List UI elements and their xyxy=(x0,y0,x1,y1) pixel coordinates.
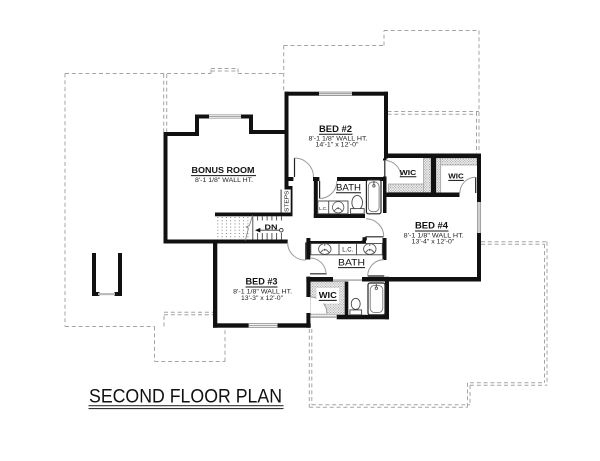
svg-text:WIC: WIC xyxy=(400,168,417,177)
svg-text:13'-4" x 12'-0": 13'-4" x 12'-0" xyxy=(412,239,455,246)
svg-text:WIC: WIC xyxy=(448,171,464,180)
svg-text:BATH: BATH xyxy=(338,257,365,268)
svg-text:L.C.: L.C. xyxy=(319,206,327,211)
svg-text:WIC: WIC xyxy=(319,291,337,300)
svg-text:13'-3" x 12'-0": 13'-3" x 12'-0" xyxy=(241,295,283,302)
svg-text:STEPS: STEPS xyxy=(285,190,291,212)
svg-text:BATH: BATH xyxy=(336,183,361,194)
svg-text:BONUS ROOM: BONUS ROOM xyxy=(192,165,255,175)
svg-text:8'-1 1/8" WALL HT.: 8'-1 1/8" WALL HT. xyxy=(195,177,253,184)
svg-text:14'-1" x 12'-0": 14'-1" x 12'-0" xyxy=(316,142,359,149)
svg-text:L.C.: L.C. xyxy=(342,248,353,254)
svg-text:BED #4: BED #4 xyxy=(415,221,449,231)
svg-text:BED #2: BED #2 xyxy=(319,124,352,134)
svg-text:BED #3: BED #3 xyxy=(246,277,278,287)
svg-text:SECOND FLOOR PLAN: SECOND FLOOR PLAN xyxy=(89,387,282,408)
